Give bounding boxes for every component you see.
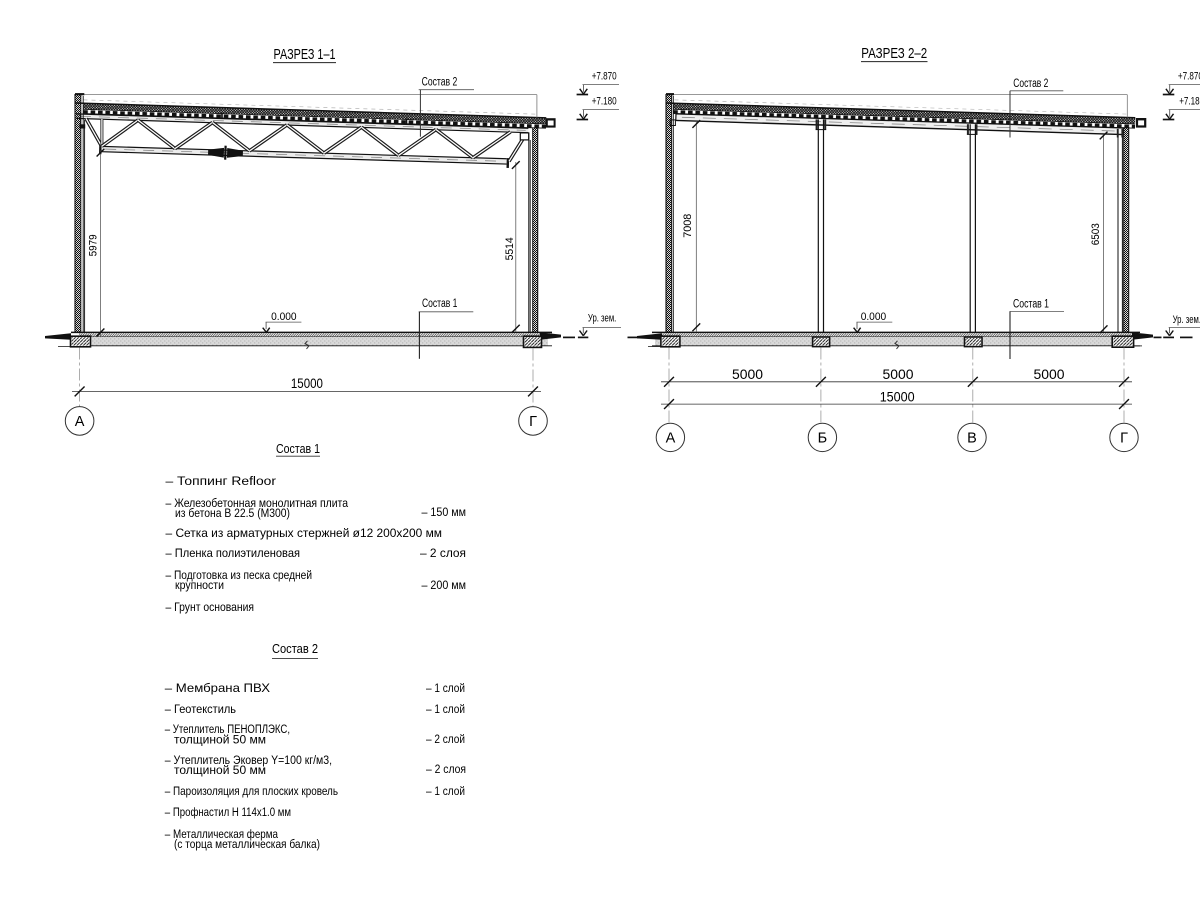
svg-text:РАЗРЕЗ 2–2: РАЗРЕЗ 2–2 [861, 46, 927, 62]
svg-text:В: В [967, 431, 977, 447]
svg-text:Г: Г [529, 414, 537, 430]
svg-text:(с торца металлическая балка): (с торца металлическая балка) [174, 837, 320, 851]
svg-text:5000: 5000 [883, 367, 914, 382]
svg-text:– Грунт основания: – Грунт основания [166, 600, 255, 614]
svg-text:РАЗРЕЗ 1–1: РАЗРЕЗ 1–1 [274, 47, 336, 63]
svg-text:– 200 мм: – 200 мм [422, 578, 467, 592]
svg-text:+7.180: +7.180 [592, 95, 617, 107]
svg-text:Г: Г [1120, 431, 1128, 447]
svg-text:+7.870: +7.870 [1178, 70, 1200, 82]
svg-text:А: А [75, 414, 85, 430]
svg-text:– Мембрана ПВХ: – Мембрана ПВХ [165, 681, 270, 695]
svg-text:из бетона В 22.5 (М300): из бетона В 22.5 (М300) [175, 506, 290, 520]
svg-text:+7.870: +7.870 [592, 70, 617, 82]
svg-text:крупности: крупности [175, 578, 224, 592]
svg-text:5000: 5000 [1034, 367, 1065, 382]
svg-text:Б: Б [818, 431, 828, 447]
svg-text:6503: 6503 [1090, 223, 1102, 245]
svg-text:толщиной 50 мм: толщиной 50 мм [174, 763, 266, 777]
svg-text:– 1 слой: – 1 слой [426, 681, 465, 695]
svg-text:толщиной 50 мм: толщиной 50 мм [174, 733, 266, 747]
svg-text:5979: 5979 [87, 234, 99, 256]
svg-text:– 2 слой: – 2 слой [426, 732, 465, 746]
svg-text:7008: 7008 [682, 214, 694, 238]
svg-text:Состав 1: Состав 1 [276, 442, 320, 456]
svg-text:5000: 5000 [732, 367, 763, 382]
svg-text:Состав 2: Состав 2 [422, 77, 458, 89]
svg-text:5514: 5514 [504, 237, 516, 260]
svg-text:– 2 слоя: – 2 слоя [426, 762, 466, 776]
svg-text:Состав 1: Состав 1 [1013, 299, 1049, 311]
svg-text:– Сетка из арматурных стержней: – Сетка из арматурных стержней ø12 200х2… [166, 526, 443, 540]
svg-text:– Топпинг Refloor: – Топпинг Refloor [166, 474, 277, 488]
svg-text:– Профнастил Н 114х1.0 мм: – Профнастил Н 114х1.0 мм [165, 805, 291, 819]
svg-text:Ур. зем.: Ур. зем. [1173, 314, 1200, 326]
svg-text:– 1 слой: – 1 слой [426, 702, 465, 716]
svg-text:Состав 1: Состав 1 [422, 298, 457, 310]
svg-text:Ур. зем.: Ур. зем. [588, 313, 616, 325]
svg-text:– 150 мм: – 150 мм [422, 505, 467, 519]
svg-text:0.000: 0.000 [271, 311, 297, 323]
svg-text:+7.180: +7.180 [1179, 95, 1200, 107]
svg-text:– Пароизоляция для плоских кро: – Пароизоляция для плоских кровель [165, 784, 338, 798]
svg-text:А: А [666, 431, 676, 447]
svg-text:15000: 15000 [291, 376, 323, 391]
svg-text:– 2 слоя: – 2 слоя [420, 546, 466, 560]
svg-text:0.000: 0.000 [861, 311, 887, 323]
svg-text:Состав 2: Состав 2 [272, 642, 318, 656]
svg-text:Состав 2: Состав 2 [1013, 78, 1048, 90]
svg-text:15000: 15000 [880, 390, 915, 405]
svg-text:– 1 слой: – 1 слой [426, 784, 465, 798]
svg-text:– Геотекстиль: – Геотекстиль [165, 702, 236, 716]
svg-text:– Пленка полиэтиленовая: – Пленка полиэтиленовая [166, 546, 301, 560]
